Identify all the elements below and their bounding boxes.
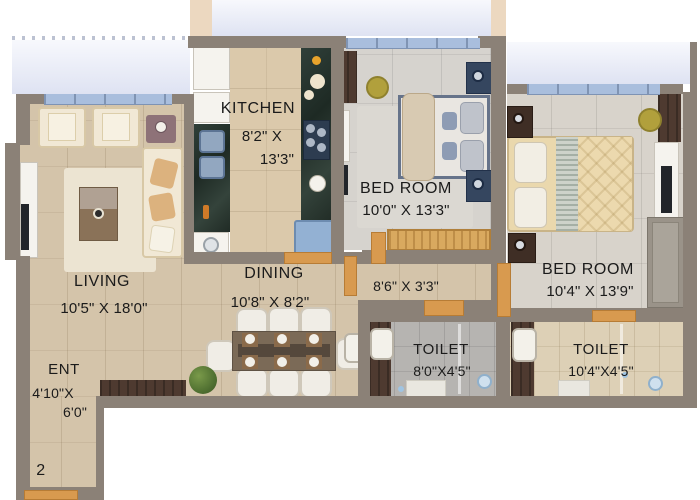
- bedroom2-tv: [661, 166, 672, 213]
- bedroom1-pillow-2: [460, 140, 484, 172]
- bedroom2-nstand-bottom-decor: [514, 239, 526, 251]
- burner-2: [317, 128, 326, 137]
- armchair-2-seat: [102, 113, 130, 141]
- floor-plan: KITCHEN 8'2" X 13'3" BED ROOM 10'0" X 13…: [0, 0, 700, 500]
- living-label: LIVING: [42, 273, 162, 291]
- wall-bedroom2-top-left: [507, 84, 527, 94]
- kitchen-dim-1: 8'2" X: [212, 128, 312, 145]
- toilet2-basin: [512, 328, 537, 362]
- kitchen-cabinet-1: [193, 46, 230, 90]
- toilet1-dim: 8'0"X4'5": [392, 363, 492, 379]
- bedroom2-dim: 10'4" X 13'9": [528, 283, 652, 300]
- unit-number: 2: [30, 462, 52, 480]
- dining-dim: 10'8" X 8'2": [200, 294, 340, 311]
- living-dim: 10'5" X 18'0": [34, 300, 174, 317]
- coffee-table-decor: [93, 208, 104, 219]
- plate-3: [309, 334, 319, 344]
- bedroom1-wardrobe: [387, 229, 491, 251]
- bedroom2-pillow-1: [514, 142, 547, 183]
- dining-chair-4: [236, 368, 268, 398]
- kitchen-sink-bowl-2: [199, 156, 225, 179]
- counter-decor-plate-2: [304, 90, 314, 100]
- plate-2: [277, 334, 287, 344]
- nightstand-bottom-decor: [472, 178, 484, 190]
- bedroom2-label: BED ROOM: [528, 261, 648, 279]
- duct-pillar-left: [190, 0, 212, 38]
- wall-living-kitchen: [184, 96, 194, 262]
- wall-bedroom2-top-right: [660, 84, 683, 94]
- plate-4: [245, 357, 255, 367]
- wall-balcony2-edge: [690, 42, 697, 92]
- plate-6: [309, 357, 319, 367]
- plate-5: [277, 357, 287, 367]
- armchair-1-seat: [48, 113, 76, 141]
- bedroom1-dim: 10'0" X 13'3": [344, 202, 468, 219]
- bedroom2-runner: [556, 137, 578, 231]
- toilet1-drain: [398, 386, 404, 392]
- bedroom1-cushion-2: [442, 142, 457, 160]
- dining-chair-6: [300, 368, 332, 398]
- bedroom2-pillow-2: [514, 187, 547, 228]
- tv-screen: [21, 204, 29, 250]
- dining-chair-5: [268, 368, 300, 398]
- counter-decor-plate-1: [310, 74, 325, 89]
- entrance-dim-2: 6'0": [45, 404, 105, 420]
- kitchen-dim-2: 13'3": [227, 151, 327, 168]
- living-balcony-railing: [44, 94, 172, 105]
- entrance-door: [24, 490, 78, 500]
- bedroom1-pillow-1: [460, 102, 484, 134]
- bedroom2-door: [497, 263, 511, 317]
- wall-kitchen-top: [188, 36, 346, 48]
- entrance-dim-1: 4'10"X: [23, 385, 83, 401]
- bedroom2-balcony: [507, 42, 690, 84]
- bedroom2-pouf: [638, 108, 662, 132]
- toilet2-dim: 10'4"X4'5": [551, 363, 651, 379]
- living-balcony: [12, 40, 190, 94]
- counter-bottle: [203, 205, 209, 219]
- toilet2-door: [592, 310, 636, 322]
- dining-label: DINING: [214, 265, 334, 283]
- wall-bottom-main: [96, 396, 693, 408]
- bedroom2-wardrobe-door: [652, 222, 679, 303]
- bedroom1-cushion-1: [442, 112, 457, 130]
- kitchen-floor: [230, 46, 301, 252]
- wall-left-bottom: [16, 256, 30, 490]
- side-table-tray: [155, 121, 167, 133]
- counter-decor-orange: [312, 56, 321, 65]
- nightstand-top-decor: [472, 70, 484, 82]
- wall-toilets-divider: [496, 322, 510, 396]
- toilet1-label: TOILET: [391, 341, 491, 358]
- toilet2-mat: [558, 380, 590, 397]
- duct-pillar-right: [491, 0, 506, 36]
- top-balcony-strip: [212, 0, 492, 36]
- sofa-pillow-2: [148, 192, 176, 222]
- toilet1-door: [424, 300, 464, 316]
- wall-right-outer: [683, 92, 697, 408]
- wall-kitchen-bottom: [184, 252, 362, 264]
- bedroom1-blanket: [402, 93, 435, 181]
- kitchen-label: KITCHEN: [208, 100, 308, 118]
- toilet1-glass-partition: [458, 324, 461, 394]
- kitchen-bowl: [309, 175, 326, 192]
- bedroom1-door: [371, 232, 386, 264]
- entrance-label: ENT: [34, 361, 94, 378]
- potted-plant: [189, 366, 217, 394]
- bedroom1-pouf: [366, 76, 389, 99]
- washing-machine-drum: [203, 237, 219, 253]
- toilet2-label: TOILET: [551, 341, 651, 358]
- kitchen-door: [284, 252, 332, 264]
- toilet2-glass-partition: [620, 324, 623, 394]
- passage-dim: 8'6" X 3'3": [346, 278, 466, 294]
- toilet1-mat: [406, 380, 446, 397]
- wall-toilet1-left: [358, 300, 370, 398]
- wall-left-bay: [5, 143, 20, 260]
- sofa-pillow-3: [148, 224, 175, 253]
- balcony-edge-ticks: [12, 36, 190, 40]
- plate-1: [245, 334, 255, 344]
- bedroom2-railing: [527, 84, 660, 95]
- wall-balcony-left-seg: [16, 94, 44, 104]
- wall-bedroom1-left: [331, 36, 344, 262]
- bedroom1-railing: [346, 38, 480, 49]
- bedroom2-quilt: [578, 137, 632, 231]
- bedroom1-label: BED ROOM: [346, 180, 466, 198]
- bedroom2-nstand-top-decor: [513, 113, 524, 124]
